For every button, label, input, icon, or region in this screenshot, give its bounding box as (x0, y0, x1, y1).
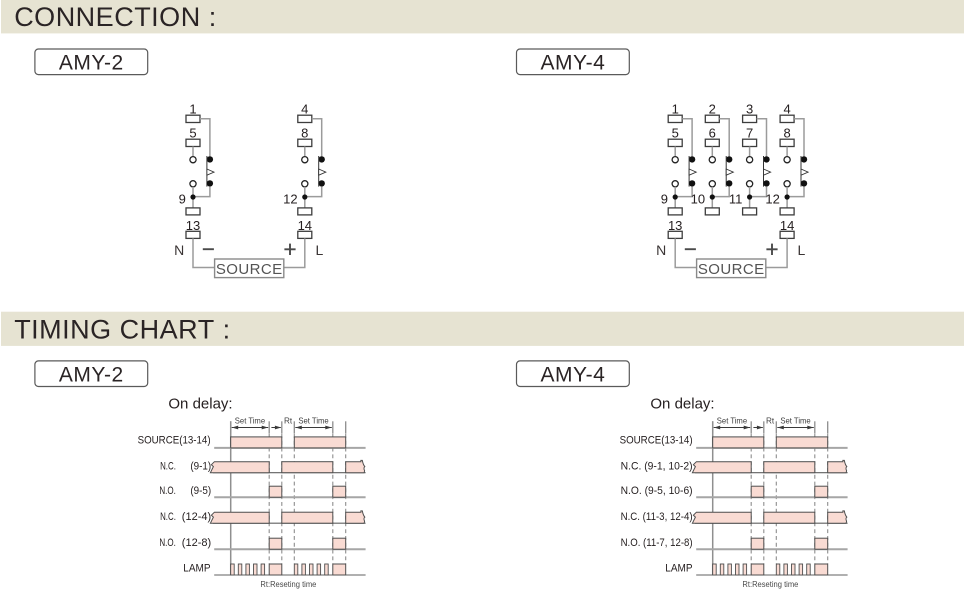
svg-text:9: 9 (179, 192, 186, 207)
svg-text:Set Time: Set Time (717, 417, 748, 426)
svg-text:AMY-4: AMY-4 (541, 52, 606, 75)
svg-text:N.O. (11-7, 12-8): N.O. (11-7, 12-8) (621, 537, 693, 549)
svg-text:4: 4 (301, 102, 308, 117)
svg-text:On delay:: On delay: (168, 396, 232, 413)
svg-text:N: N (656, 242, 666, 258)
svg-text:Rt: Rt (766, 417, 775, 426)
svg-text:AMY-2: AMY-2 (59, 364, 124, 387)
svg-text:(12-4): (12-4) (182, 511, 211, 523)
svg-text:13: 13 (668, 218, 682, 233)
svg-text:7: 7 (746, 126, 753, 141)
svg-text:SOURCE(13-14): SOURCE(13-14) (620, 435, 693, 447)
svg-text:12: 12 (765, 192, 779, 207)
svg-text:9: 9 (661, 192, 668, 207)
svg-text:TIMING CHART :: TIMING CHART : (14, 314, 231, 344)
svg-text:5: 5 (189, 126, 196, 141)
svg-text:(9-5): (9-5) (190, 485, 211, 497)
svg-text:Set Time: Set Time (298, 417, 329, 426)
svg-text:1: 1 (189, 102, 196, 117)
svg-text:SOURCE: SOURCE (216, 261, 283, 278)
svg-text:11: 11 (729, 192, 743, 207)
svg-text:N.C. (11-3, 12-4): N.C. (11-3, 12-4) (621, 511, 693, 523)
svg-text:AMY-2: AMY-2 (59, 52, 124, 75)
svg-text:Set Time: Set Time (235, 417, 266, 426)
svg-text:N.C.: N.C. (160, 511, 176, 523)
svg-text:12: 12 (283, 192, 297, 207)
svg-text:On delay:: On delay: (650, 396, 714, 413)
svg-text:10: 10 (691, 192, 705, 207)
svg-text:N.C. (9-1, 10-2): N.C. (9-1, 10-2) (621, 460, 693, 472)
svg-text:8: 8 (301, 126, 308, 141)
svg-text:13: 13 (186, 218, 200, 233)
svg-text:SOURCE: SOURCE (698, 261, 765, 278)
svg-text:L: L (316, 242, 324, 258)
svg-text:8: 8 (783, 126, 790, 141)
svg-text:6: 6 (709, 126, 716, 141)
svg-text:N.O.: N.O. (159, 485, 176, 497)
svg-text:(12-8): (12-8) (182, 537, 211, 549)
svg-text:14: 14 (780, 218, 794, 233)
svg-text:(9-1): (9-1) (190, 460, 211, 472)
svg-text:5: 5 (672, 126, 679, 141)
svg-text:1: 1 (672, 102, 679, 117)
svg-text:N.C.: N.C. (160, 460, 176, 472)
svg-text:LAMP: LAMP (665, 563, 692, 575)
svg-text:LAMP: LAMP (183, 563, 210, 575)
svg-text:N.O.: N.O. (159, 537, 176, 549)
svg-text:Rt: Rt (284, 417, 293, 426)
svg-text:SOURCE(13-14): SOURCE(13-14) (138, 435, 211, 447)
svg-text:4: 4 (783, 102, 790, 117)
svg-text:N.O. (9-5, 10-6): N.O. (9-5, 10-6) (621, 485, 693, 497)
svg-text:AMY-4: AMY-4 (541, 364, 606, 387)
svg-text:N: N (174, 242, 184, 258)
svg-text:L: L (798, 242, 806, 258)
svg-text:3: 3 (746, 102, 753, 117)
svg-text:2: 2 (709, 102, 716, 117)
svg-text:Rt:Reseting time: Rt:Reseting time (742, 579, 798, 589)
svg-text:Set Time: Set Time (780, 417, 811, 426)
svg-text:CONNECTION :: CONNECTION : (14, 2, 217, 32)
svg-text:14: 14 (298, 218, 312, 233)
svg-text:Rt:Reseting time: Rt:Reseting time (260, 579, 316, 589)
